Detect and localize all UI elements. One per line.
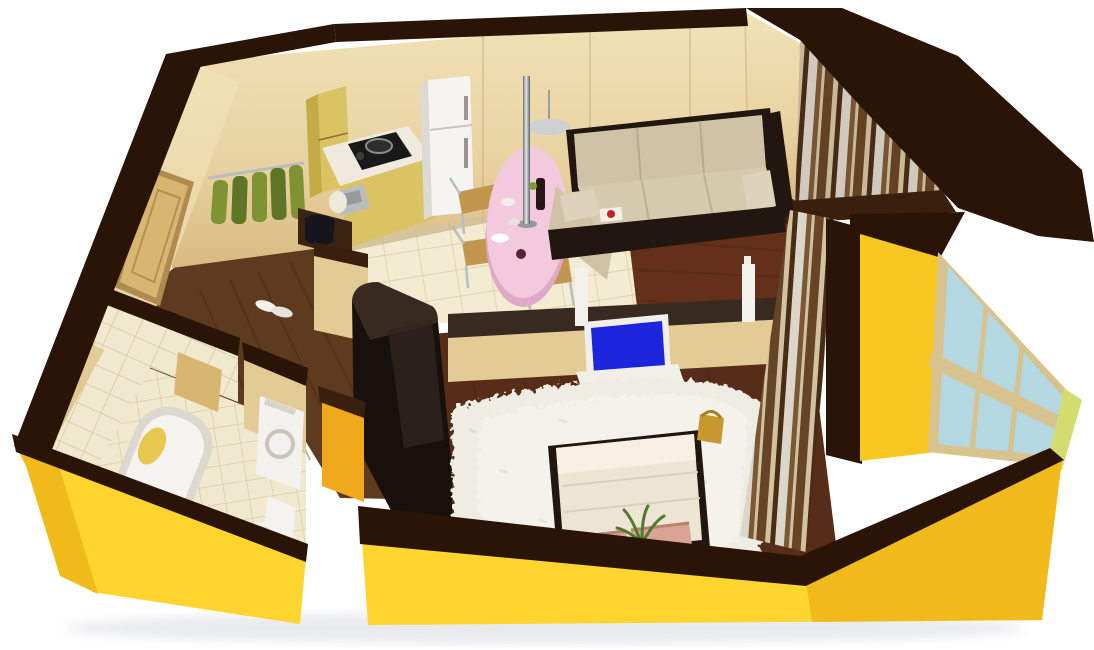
plate — [501, 198, 515, 206]
flower — [607, 210, 615, 218]
window-glass — [938, 266, 1064, 456]
fruit — [529, 182, 537, 190]
floor-plan-render — [0, 0, 1094, 650]
vase — [329, 191, 347, 213]
bag — [305, 214, 335, 245]
balcony-window — [928, 252, 1082, 470]
balcony-divider-cap — [826, 218, 862, 464]
fridge-handle — [464, 96, 468, 120]
basket — [697, 411, 724, 444]
apartment-scene — [0, 0, 1094, 650]
column — [742, 264, 755, 322]
tv-screen — [591, 321, 665, 373]
cup — [516, 249, 526, 259]
magazine — [599, 207, 622, 222]
coat — [231, 176, 248, 224]
fridge-handle2 — [464, 138, 468, 168]
wine-bottle — [536, 178, 545, 210]
coat — [210, 180, 228, 225]
arm-pillow — [742, 170, 776, 213]
plate — [491, 234, 509, 243]
pan — [366, 139, 392, 153]
coat — [252, 172, 267, 222]
burner — [356, 152, 364, 160]
washing-machine — [256, 396, 304, 490]
column — [575, 268, 588, 326]
pendant-lamp — [528, 119, 570, 135]
support-pole — [523, 76, 530, 224]
coat — [270, 168, 287, 220]
dish — [508, 219, 520, 226]
